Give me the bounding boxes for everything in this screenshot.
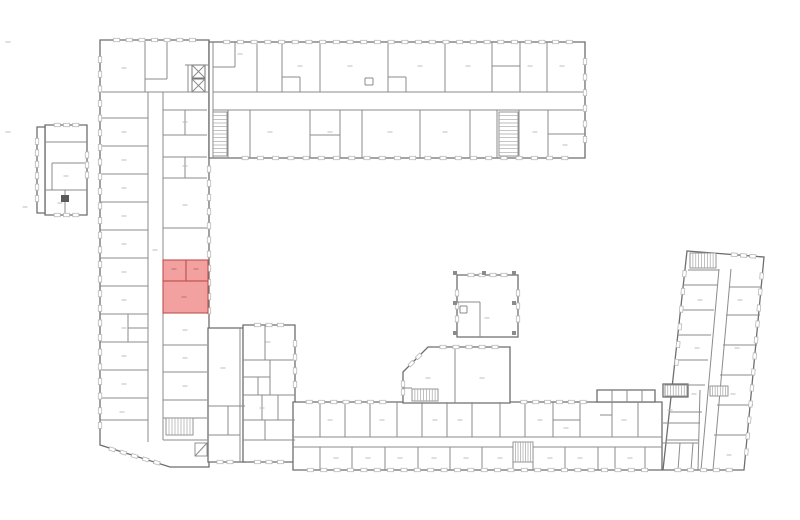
window-icon <box>676 341 680 347</box>
window-icon <box>224 40 230 43</box>
window-icon <box>583 74 586 80</box>
window-icon <box>440 156 446 159</box>
window-icon <box>98 378 101 384</box>
window-icon <box>731 253 737 257</box>
window-icon <box>562 156 568 159</box>
window-icon <box>35 138 38 144</box>
window-icon <box>35 161 38 167</box>
window-icon <box>508 468 514 471</box>
highlighted-room-group[interactable] <box>163 260 208 313</box>
window-icon <box>521 400 527 403</box>
window-icon <box>547 156 553 159</box>
window-icon <box>273 156 279 159</box>
stair-outline <box>412 389 438 401</box>
window-icon <box>740 254 746 258</box>
window-icon <box>457 40 463 43</box>
left-wing-outline <box>100 40 209 467</box>
window-icon <box>388 40 394 43</box>
solid-shafts-group <box>61 195 69 202</box>
window-icon <box>320 40 326 43</box>
window-icon <box>410 156 416 159</box>
pillar-icon <box>453 331 457 335</box>
window-icon <box>470 40 476 43</box>
window-icon <box>726 468 732 471</box>
window-icon <box>402 40 408 43</box>
window-icon <box>453 345 459 348</box>
window-icon <box>588 468 594 471</box>
window-icon <box>98 115 101 121</box>
window-icon <box>441 468 447 471</box>
window-icon <box>511 40 517 43</box>
window-icon <box>468 273 474 276</box>
window-icon <box>484 40 490 43</box>
window-icon <box>98 144 101 150</box>
window-icon <box>361 468 367 471</box>
window-icon <box>98 130 101 136</box>
window-icon <box>744 449 748 455</box>
window-icon <box>429 40 435 43</box>
window-icon <box>416 40 422 43</box>
window-icon <box>306 400 312 403</box>
window-icon <box>568 400 574 403</box>
window-icon <box>85 152 88 158</box>
window-icon <box>98 305 101 311</box>
window-icon <box>98 174 101 180</box>
pillar-icon <box>453 271 457 275</box>
window-icon <box>425 156 431 159</box>
window-icon <box>98 408 101 414</box>
window-icon <box>379 156 385 159</box>
window-icon <box>583 105 586 111</box>
window-icon <box>756 321 760 327</box>
window-icon <box>548 468 554 471</box>
window-icon <box>355 400 361 403</box>
window-icon <box>750 385 754 391</box>
window-icon <box>455 290 458 296</box>
window-icon <box>401 389 404 395</box>
window-icon <box>701 468 707 471</box>
highlighted-room[interactable] <box>186 260 208 281</box>
window-icon <box>746 433 750 439</box>
window-icon <box>98 364 101 370</box>
window-icon <box>347 40 353 43</box>
window-icon <box>251 40 257 43</box>
window-icon <box>380 400 386 403</box>
window-icon <box>678 324 682 330</box>
window-icon <box>501 156 507 159</box>
window-icon <box>749 401 753 407</box>
window-icon <box>98 247 101 253</box>
window-icon <box>751 369 755 375</box>
window-icon <box>681 288 685 294</box>
window-icon <box>292 40 298 43</box>
window-icon <box>293 354 296 360</box>
window-icon <box>361 40 367 43</box>
window-icon <box>364 156 370 159</box>
window-icon <box>516 316 519 322</box>
south-annex-outline <box>243 325 295 462</box>
window-icon <box>207 251 210 257</box>
window-icon <box>468 468 474 471</box>
window-icon <box>533 400 539 403</box>
window-icon <box>334 156 340 159</box>
window-icon <box>207 166 210 172</box>
window-icon <box>35 184 38 190</box>
window-icon <box>278 323 284 326</box>
window-icon <box>374 40 380 43</box>
window-icon <box>553 40 559 43</box>
window-icon <box>278 460 284 463</box>
pillar-icon <box>512 271 516 275</box>
window-icon <box>293 381 296 387</box>
corner-block-outline <box>208 328 245 462</box>
window-icon <box>747 417 751 423</box>
window-icon <box>114 38 120 41</box>
window-icon <box>293 341 296 347</box>
window-icon <box>516 303 519 309</box>
window-icon <box>501 273 507 276</box>
window-icon <box>98 218 101 224</box>
stair-outline <box>166 418 193 435</box>
window-icon <box>401 468 407 471</box>
window-icon <box>492 345 498 348</box>
window-icon <box>98 86 101 92</box>
window-icon <box>54 123 60 126</box>
window-icon <box>758 289 762 295</box>
window-icon <box>479 345 485 348</box>
window-icon <box>54 213 60 216</box>
window-icon <box>561 468 567 471</box>
highlighted-room[interactable] <box>163 260 186 281</box>
window-icon <box>98 320 101 326</box>
window-icon <box>217 460 223 463</box>
window-icon <box>486 156 492 159</box>
window-icon <box>682 271 686 277</box>
window-icon <box>318 156 324 159</box>
window-icon <box>443 40 449 43</box>
window-icon <box>495 468 501 471</box>
window-icon <box>98 261 101 267</box>
window-icon <box>521 468 527 471</box>
stair-outline <box>690 253 716 268</box>
window-icon <box>349 156 355 159</box>
floor-plan-svg <box>0 0 800 520</box>
window-icon <box>583 136 586 142</box>
window-icon <box>688 468 694 471</box>
window-icon <box>628 468 634 471</box>
window-icon <box>414 468 420 471</box>
window-icon <box>343 400 349 403</box>
window-icon <box>394 156 400 159</box>
window-icon <box>583 59 586 65</box>
window-icon <box>333 40 339 43</box>
window-icon <box>64 123 70 126</box>
pillar-icon <box>512 331 516 335</box>
window-icon <box>481 468 487 471</box>
window-icon <box>331 400 337 403</box>
window-icon <box>85 172 88 178</box>
window-icon <box>126 38 132 41</box>
window-icon <box>440 345 446 348</box>
window-icon <box>237 40 243 43</box>
window-icon <box>498 40 504 43</box>
window-icon <box>164 38 170 41</box>
window-icon <box>535 468 541 471</box>
window-icon <box>207 195 210 201</box>
window-icon <box>306 40 312 43</box>
window-icon <box>368 400 374 403</box>
elevators-group <box>192 65 205 92</box>
window-icon <box>207 237 210 243</box>
floor-plan-canvas <box>0 0 800 520</box>
window-icon <box>307 468 313 471</box>
window-icon <box>255 323 261 326</box>
window-icon <box>713 468 719 471</box>
window-icon <box>98 349 101 355</box>
window-icon <box>64 213 70 216</box>
window-icon <box>207 180 210 186</box>
window-icon <box>454 468 460 471</box>
window-icon <box>98 57 101 63</box>
window-icon <box>757 305 761 311</box>
window-icon <box>516 290 519 296</box>
window-icon <box>455 156 461 159</box>
window-icon <box>321 468 327 471</box>
window-icon <box>388 468 394 471</box>
window-icon <box>98 276 101 282</box>
window-icon <box>98 203 101 209</box>
window-icon <box>227 460 233 463</box>
window-icon <box>98 71 101 77</box>
window-icon <box>319 400 325 403</box>
window-icon <box>85 162 88 168</box>
window-icon <box>73 213 79 216</box>
window-icon <box>531 156 537 159</box>
window-icon <box>679 306 683 312</box>
window-icon <box>525 40 531 43</box>
window-icon <box>428 468 434 471</box>
window-icon <box>266 460 272 463</box>
window-icon <box>98 159 101 165</box>
window-icon <box>98 422 101 428</box>
window-icon <box>575 468 581 471</box>
window-icon <box>35 173 38 179</box>
window-icon <box>266 323 272 326</box>
window-icon <box>545 400 551 403</box>
top-wing-outline <box>209 42 585 158</box>
window-icon <box>207 209 210 215</box>
window-icon <box>98 188 101 194</box>
window-icon <box>98 232 101 238</box>
window-icon <box>347 468 353 471</box>
window-icon <box>242 156 248 159</box>
window-icon <box>257 156 263 159</box>
window-icon <box>288 156 294 159</box>
pillar-icon <box>453 301 457 305</box>
window-icon <box>73 123 79 126</box>
window-icon <box>207 223 210 229</box>
window-icon <box>189 38 195 41</box>
window-icon <box>98 101 101 107</box>
window-icon <box>566 40 572 43</box>
window-icon <box>583 90 586 96</box>
solid-shaft <box>61 195 69 202</box>
window-icon <box>516 156 522 159</box>
window-icon <box>152 38 158 41</box>
window-icon <box>401 381 404 387</box>
window-icon <box>255 460 261 463</box>
pillar-icon <box>482 271 486 275</box>
window-icon <box>334 468 340 471</box>
window-icon <box>675 359 679 365</box>
window-icon <box>580 400 586 403</box>
window-icon <box>615 468 621 471</box>
building-outlines-group <box>37 40 764 470</box>
pillar-icon <box>512 301 516 305</box>
window-icon <box>642 468 648 471</box>
window-icon <box>35 150 38 156</box>
window-icon <box>754 337 758 343</box>
window-icon <box>470 156 476 159</box>
bottom-wing-roof-row-outline <box>597 390 655 402</box>
window-icon <box>374 468 380 471</box>
window-icon <box>293 368 296 374</box>
window-icon <box>455 316 458 322</box>
window-icon <box>490 273 496 276</box>
window-icon <box>583 121 586 127</box>
window-icon <box>177 38 183 41</box>
window-icon <box>35 196 38 202</box>
bottom-wing-outline <box>293 402 662 470</box>
window-icon <box>539 40 545 43</box>
window-icon <box>466 345 472 348</box>
window-icon <box>279 40 285 43</box>
window-icon <box>265 40 271 43</box>
window-icon <box>602 468 608 471</box>
window-icon <box>98 291 101 297</box>
window-icon <box>556 400 562 403</box>
window-icon <box>139 38 145 41</box>
window-icon <box>753 353 757 359</box>
window-icon <box>750 254 756 258</box>
window-icon <box>675 468 681 471</box>
window-icon <box>98 393 101 399</box>
window-icon <box>760 273 764 279</box>
window-icon <box>303 156 309 159</box>
window-icon <box>98 335 101 341</box>
